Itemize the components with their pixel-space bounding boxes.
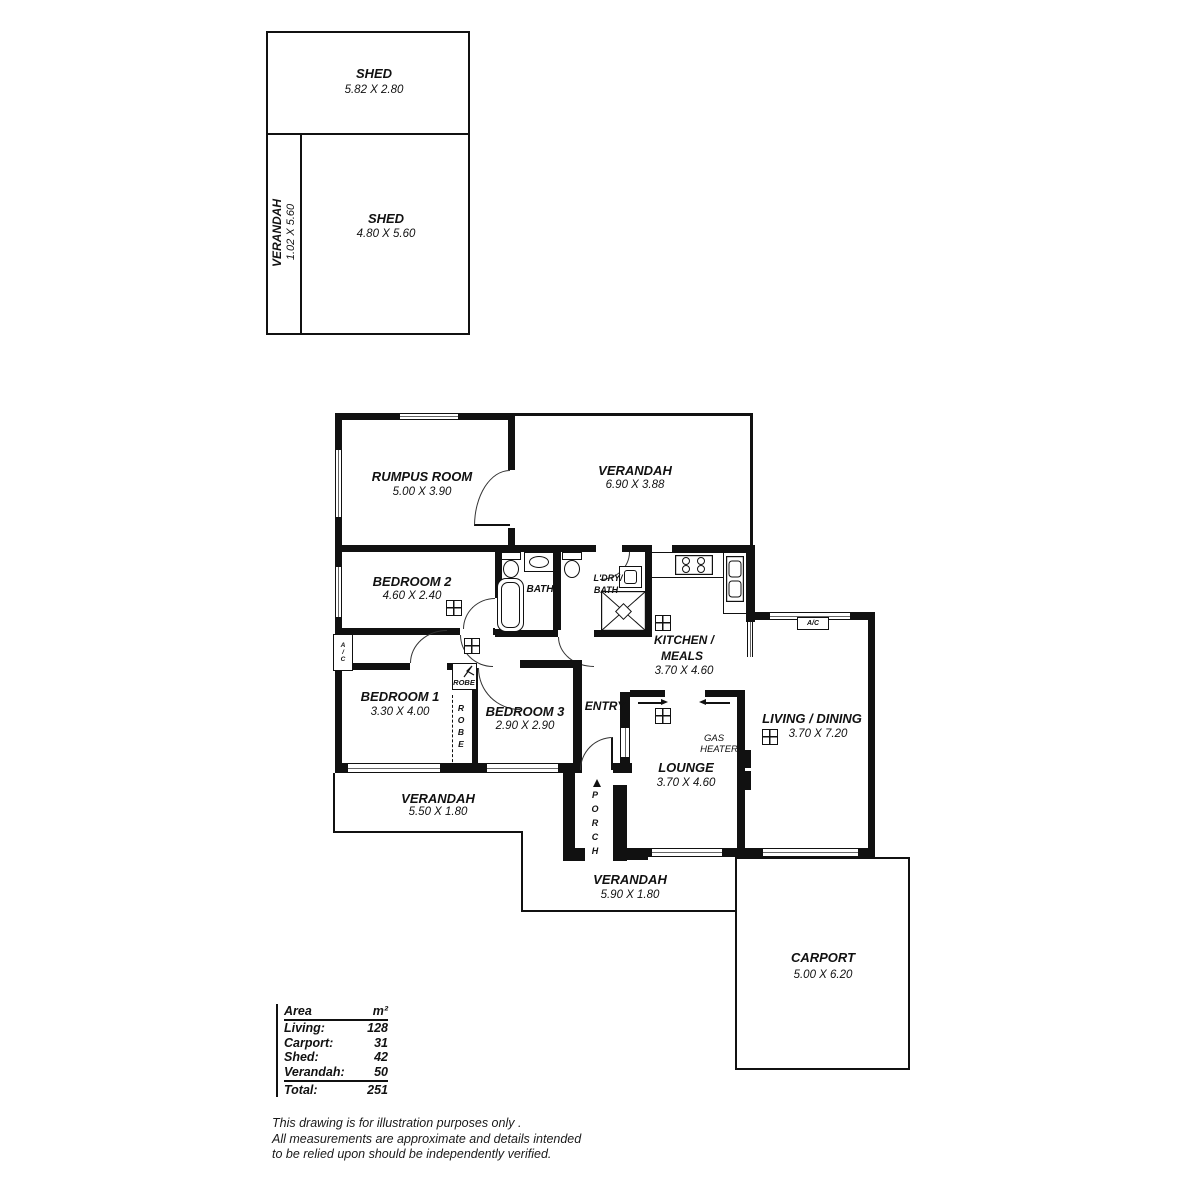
gas-heater-unit (744, 771, 751, 790)
heating-vent-icon (655, 708, 671, 724)
wall (746, 545, 755, 622)
table-row: Verandah: 50 (284, 1065, 388, 1080)
ac-unit: A/C (797, 617, 829, 630)
gas-heater-unit (744, 750, 751, 768)
kitchen-label: MEALS (661, 650, 703, 663)
window (487, 763, 558, 773)
row-label: Shed: (284, 1050, 319, 1065)
shed2-dims: 4.80 X 5.60 (357, 228, 416, 241)
heating-vent-icon (762, 729, 778, 745)
wall (613, 763, 632, 773)
window (652, 848, 722, 857)
table-total-row: Total: 251 (284, 1080, 388, 1097)
wall (563, 848, 585, 861)
wall (868, 612, 875, 857)
lounge-label: LOUNGE (658, 761, 714, 775)
heating-vent-icon (446, 600, 462, 616)
ac-label: A/C (807, 620, 819, 627)
door-opening (596, 545, 622, 552)
robe-vertical-label: ROBE (456, 703, 466, 763)
verandah-outline (333, 831, 523, 833)
table-row: Carport: 31 (284, 1036, 388, 1051)
living-dining-label: LIVING / DINING (762, 712, 862, 726)
heating-vent-icon (464, 638, 480, 654)
vanity-sink-icon (524, 552, 554, 572)
toilet-icon (561, 552, 583, 578)
window (763, 848, 858, 857)
entry-label: ENTRY (585, 700, 625, 713)
ac-unit: A/C (333, 634, 353, 671)
table-row: Living: 128 (284, 1021, 388, 1036)
door-opening (558, 630, 594, 637)
disclaimer: This drawing is for illustration purpose… (272, 1116, 581, 1163)
lounge-dims: 3.70 X 4.60 (657, 777, 716, 790)
opening-arrow-icon (706, 702, 730, 704)
bedroom1-label: BEDROOM 1 (361, 690, 440, 704)
rumpus-room-label: RUMPUS ROOM (372, 470, 472, 484)
shed-verandah-dims: 1.02 X 5.60 (285, 204, 297, 260)
verandah-outline (333, 773, 335, 833)
carport-dims: 5.00 X 6.20 (794, 969, 853, 982)
front-door-arc (580, 737, 613, 770)
opening-arrow-icon (661, 699, 668, 705)
laundry-bath-label: BATH (594, 586, 618, 596)
porch-arrow-icon (593, 779, 601, 787)
shed2-label: SHED (368, 212, 404, 226)
verandah-outline (750, 413, 753, 547)
row-value: 31 (374, 1036, 388, 1051)
shed1-label: SHED (356, 67, 392, 81)
row-label: Carport: (284, 1036, 333, 1051)
bedroom3-label: BEDROOM 3 (486, 705, 565, 719)
verandah-top-label: VERANDAH (598, 464, 672, 478)
disclaimer-line: to be relied upon should be independentl… (272, 1147, 581, 1163)
wall (553, 545, 561, 635)
bathtub-icon (497, 578, 524, 632)
total-label: Total: (284, 1083, 318, 1097)
verandah-bottom-label: VERANDAH (593, 873, 667, 887)
verandah-bottom-dims: 5.90 X 1.80 (601, 889, 660, 902)
carport-label: CARPORT (791, 951, 855, 965)
living-dining-dims: 3.70 X 7.20 (789, 728, 848, 741)
wall (458, 413, 515, 420)
disclaimer-line: This drawing is for illustration purpose… (272, 1116, 581, 1132)
robe-label: ROBE (453, 679, 475, 687)
porch-label: PORCH (590, 790, 600, 854)
kitchen-sink-icon (726, 556, 744, 602)
toilet-icon (500, 552, 522, 578)
robe-dashed-line (452, 695, 453, 767)
area-header-label: Area (284, 1004, 312, 1018)
wall (705, 690, 737, 697)
row-label: Verandah: (284, 1065, 345, 1080)
table-row: Shed: 42 (284, 1050, 388, 1065)
wall (335, 545, 753, 552)
bedroom2-dims: 4.60 X 2.40 (383, 590, 442, 603)
opening-arrow-icon (699, 699, 706, 705)
verandah-outline (515, 413, 753, 416)
wall (300, 135, 302, 335)
window (747, 622, 753, 657)
laundry-bath-label: L'DRY/ (594, 574, 623, 584)
row-value: 42 (374, 1050, 388, 1065)
shed-verandah-label: VERANDAH (270, 199, 284, 267)
row-value: 50 (374, 1065, 388, 1080)
area-header-unit: m² (373, 1004, 388, 1018)
heating-vent-icon (655, 615, 671, 631)
door-arc (474, 470, 510, 526)
opening-arrow-icon (638, 702, 662, 704)
ac-label: A/C (340, 642, 347, 663)
bath-label: BATH (526, 584, 553, 595)
verandah-outline (521, 831, 523, 912)
window (400, 413, 458, 420)
stove-icon (675, 555, 713, 575)
door-arc (463, 598, 495, 629)
rumpus-room-dims: 5.00 X 3.90 (393, 486, 452, 499)
area-table: Area m² Living: 128 Carport: 31 Shed: 42… (276, 1004, 388, 1097)
wall (335, 413, 400, 420)
verandah-left-label: VERANDAH (401, 792, 475, 806)
verandah-outline (521, 910, 737, 912)
row-value: 128 (367, 1021, 388, 1036)
total-value: 251 (367, 1083, 388, 1097)
door-opening (650, 545, 672, 552)
window (335, 450, 342, 517)
wall (573, 660, 582, 763)
wall (266, 133, 470, 135)
window (335, 567, 342, 617)
shed1-dims: 5.82 X 2.80 (345, 84, 404, 97)
disclaimer-line: All measurements are approximate and det… (272, 1132, 581, 1148)
verandah-left-dims: 5.50 X 1.80 (409, 806, 468, 819)
window (348, 763, 440, 773)
shower-icon (601, 591, 646, 631)
wall (630, 690, 665, 697)
bedroom3-dims: 2.90 X 2.90 (496, 720, 555, 733)
wall (737, 690, 745, 848)
door-opening (460, 628, 493, 635)
kitchen-dims: 3.70 X 4.60 (655, 665, 714, 678)
window (620, 728, 630, 757)
gas-heater-label: HEATER (700, 744, 738, 755)
bedroom1-dims: 3.30 X 4.00 (371, 706, 430, 719)
verandah-top-dims: 6.90 X 3.88 (606, 479, 665, 492)
row-label: Living: (284, 1021, 325, 1036)
kitchen-label: KITCHEN / (654, 634, 714, 647)
robe-zigzag-icon (463, 665, 475, 678)
bedroom2-label: BEDROOM 2 (373, 575, 452, 589)
floorplan-page: SHED 5.82 X 2.80 VERANDAH 1.02 X 5.60 SH… (0, 0, 1180, 1200)
door-opening (410, 663, 447, 670)
area-table-header: Area m² (284, 1004, 388, 1021)
gas-heater-label: GAS (704, 733, 724, 744)
